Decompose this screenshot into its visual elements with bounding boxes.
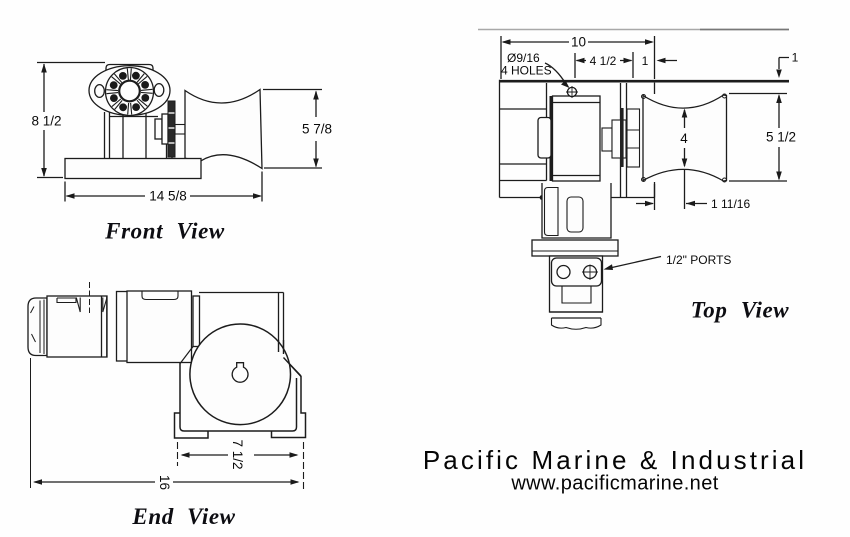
svg-text:4 HOLES: 4 HOLES — [501, 64, 552, 78]
svg-text:7 1/2: 7 1/2 — [230, 439, 245, 469]
svg-text:www.pacificmarine.net: www.pacificmarine.net — [510, 473, 718, 495]
svg-text:5 1/2: 5 1/2 — [766, 130, 796, 145]
svg-text:4: 4 — [680, 131, 688, 146]
svg-text:1: 1 — [792, 51, 799, 65]
svg-text:Pacific Marine & Industrial: Pacific Marine & Industrial — [423, 445, 807, 475]
svg-text:End View: End View — [131, 504, 235, 529]
svg-text:Front View: Front View — [104, 219, 225, 244]
svg-text:1 11/16: 1 11/16 — [711, 197, 750, 211]
svg-text:8 1/2: 8 1/2 — [31, 114, 61, 129]
svg-text:5 7/8: 5 7/8 — [302, 122, 332, 137]
svg-text:16: 16 — [157, 475, 172, 490]
svg-text:1: 1 — [642, 54, 649, 68]
svg-text:4 1/2: 4 1/2 — [590, 54, 617, 68]
svg-text:1/2" PORTS: 1/2" PORTS — [666, 253, 731, 267]
svg-text:10: 10 — [571, 35, 586, 50]
svg-text:14 5/8: 14 5/8 — [149, 189, 187, 204]
svg-text:Top View: Top View — [691, 298, 790, 323]
